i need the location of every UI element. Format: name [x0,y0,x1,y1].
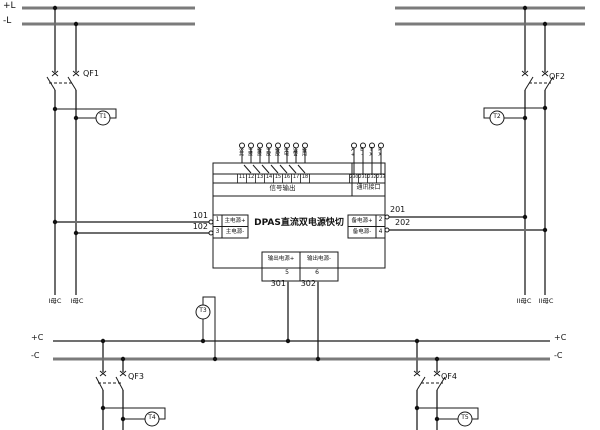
bus-minus-L-label: -L [3,17,11,27]
qf4-label: QF4 [441,373,457,382]
bus-plus-C-right-label: +C [554,334,566,343]
wire-102-label: 102 [180,223,208,232]
bus-II-lines [395,8,585,24]
signal-terminal-no: 18 [301,175,310,181]
wire-202-label: 202 [395,219,410,228]
feeder-1-poles [55,8,76,295]
output-label-plus: 输出电源+ [262,256,300,262]
t3-label: T3 [195,308,211,315]
schematic-canvas: +L -L QF1 T1 101 102 I母C I母C QF2 T2 201 … [0,0,600,430]
signal-terminal-no: 12 [247,175,256,181]
feeder-2-poles [525,8,545,295]
signal-terminal-no: 13 [256,175,265,181]
main-in-label-2: 主电源- [222,229,248,235]
t2-label: T2 [489,114,505,121]
wire-201-label: 201 [390,206,405,215]
bus-I-lines [22,8,195,24]
bus-plus-C-left-label: +C [31,334,43,343]
wire-301-302 [288,281,318,359]
signal-terminal-no: 16 [283,175,292,181]
qf1-breaker-symbol [47,71,79,90]
comm-group-label: 通讯接口 [352,185,385,192]
main-in-no-2: 3 [213,229,222,236]
output-no-minus: 6 [309,270,325,277]
comm-pin-tag: A+ [350,147,355,162]
output-label-minus: 输出电源- [300,256,338,262]
signal-pin-tag: 主故 [265,147,270,162]
comm-terminal-no: 233 [377,176,386,181]
qf3-label: QF3 [128,373,144,382]
output-no-plus: 5 [279,270,295,277]
comm-terminal-no: 230 [350,176,359,181]
wire-201-202 [389,217,545,230]
wire-301-label: 301 [264,280,286,289]
signal-terminal-no: 11 [238,175,247,181]
backup-in-no-1: 2 [376,217,385,224]
schematic-drawing [0,0,600,430]
signal-terminal-no: 15 [274,175,283,181]
bus-plus-L-label: +L [3,2,16,12]
bus-minus-C-right-label: -C [554,352,562,361]
t4-label: T4 [144,415,160,422]
qf1-label: QF1 [83,70,99,79]
backup-in-label-2: 备电源- [348,229,376,235]
t5-label: T5 [457,415,473,422]
signal-pin-tag: 备投 [256,147,261,162]
qf2-label: QF2 [549,73,565,82]
signal-group-label: 信号输出 [213,185,352,192]
signal-terminal-no: 14 [265,175,274,181]
main-in-no-1: 1 [213,217,222,224]
bus2-tag-b: II母C [531,298,561,305]
comm-pin-tag: B- [359,147,364,162]
comm-terminal-no: 232 [368,176,377,181]
bus-C-lines [53,341,550,359]
bus1-tag-b: I母C [63,298,91,305]
signal-pin-tag: 公共 [238,147,243,162]
comm-terminal-no: 231 [359,176,368,181]
backup-in-no-2: 4 [376,229,385,236]
wire-101-label: 101 [180,212,208,221]
signal-pin-tag: 主投 [247,147,252,162]
feeder-3-poles [103,341,123,430]
wire-302-label: 302 [294,280,316,289]
backup-in-label-1: 备电源+ [348,218,376,224]
signal-terminal-no: 17 [292,175,301,181]
signal-pin-tag: 失电 [283,147,288,162]
signal-pin-tag: 备用 [301,147,306,162]
comm-pin-tag: TX [368,147,373,162]
main-in-label-1: 主电源+ [222,218,248,224]
signal-pin-tag: 告警 [292,147,297,162]
signal-pin-tag: 备故 [274,147,279,162]
bus-minus-C-left-label: -C [31,352,39,361]
comm-pin-tag: RX [377,147,382,162]
t1-label: T1 [95,114,111,121]
qf3-breaker-symbol [96,371,126,390]
